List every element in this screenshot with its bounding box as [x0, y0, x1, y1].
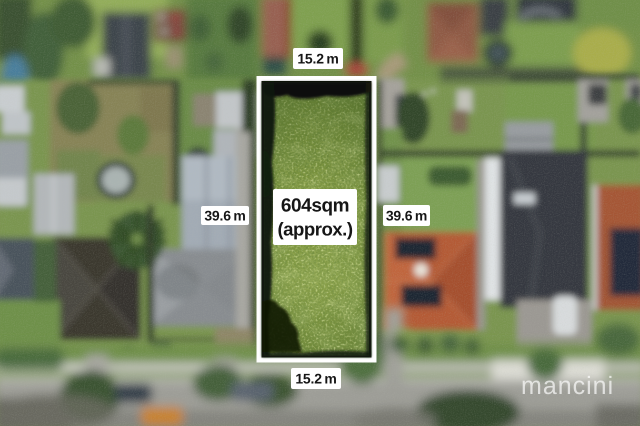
svg-text:15.2 m: 15.2 m	[295, 370, 336, 386]
svg-text:39.6 m: 39.6 m	[386, 207, 427, 223]
svg-text:mancini: mancini	[521, 372, 614, 400]
svg-text:(approx.): (approx.)	[277, 219, 352, 240]
svg-text:39.6 m: 39.6 m	[204, 207, 245, 223]
svg-text:15.2 m: 15.2 m	[297, 50, 338, 66]
svg-text:604sqm: 604sqm	[281, 196, 349, 217]
